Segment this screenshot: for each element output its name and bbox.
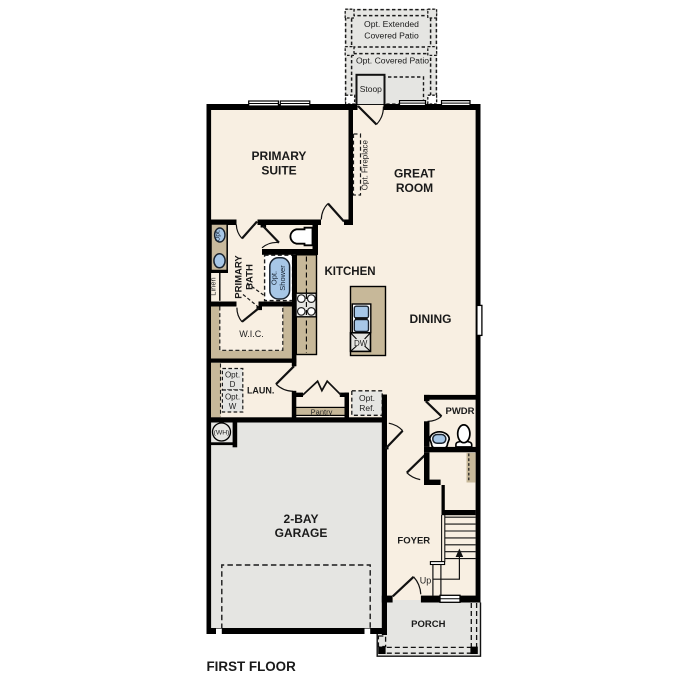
svg-text:SUITE: SUITE xyxy=(261,164,296,178)
svg-text:W.I.C.: W.I.C. xyxy=(239,329,264,339)
svg-text:Opt. Fireplace: Opt. Fireplace xyxy=(361,140,370,191)
svg-text:PRIMARY: PRIMARY xyxy=(252,149,307,163)
svg-text:ROOM: ROOM xyxy=(396,181,433,195)
svg-text:PRIMARY: PRIMARY xyxy=(234,255,245,299)
svg-text:DW: DW xyxy=(354,339,368,348)
svg-text:GARAGE: GARAGE xyxy=(275,526,328,540)
svg-text:FOYER: FOYER xyxy=(397,536,430,547)
svg-text:BATH: BATH xyxy=(245,264,256,290)
svg-text:(WH): (WH) xyxy=(214,430,230,437)
svg-text:Covered Patio: Covered Patio xyxy=(364,31,419,41)
svg-text:PWDR: PWDR xyxy=(445,406,474,417)
svg-text:Linen: Linen xyxy=(209,277,218,295)
svg-text:PORCH: PORCH xyxy=(411,619,445,630)
svg-text:Shower: Shower xyxy=(278,265,287,291)
svg-text:Opt.: Opt. xyxy=(359,393,375,403)
svg-text:Ref.: Ref. xyxy=(359,403,375,413)
svg-text:D: D xyxy=(230,380,236,389)
svg-text:W: W xyxy=(229,402,237,411)
svg-text:LAUN.: LAUN. xyxy=(247,386,275,396)
svg-text:DINING: DINING xyxy=(410,312,452,326)
svg-text:Pantry: Pantry xyxy=(311,408,333,417)
svg-text:Opt.: Opt. xyxy=(225,393,240,402)
svg-text:Stoop: Stoop xyxy=(360,84,382,94)
svg-text:Opt. Covered Patio: Opt. Covered Patio xyxy=(356,56,429,66)
svg-text:Opt.: Opt. xyxy=(225,371,240,380)
svg-text:Up: Up xyxy=(420,576,432,586)
svg-text:Opt. Extended: Opt. Extended xyxy=(364,19,419,29)
svg-text:Opt.: Opt. xyxy=(215,229,222,241)
svg-text:2-BAY: 2-BAY xyxy=(284,512,319,526)
svg-text:GREAT: GREAT xyxy=(394,167,436,181)
svg-text:KITCHEN: KITCHEN xyxy=(324,266,375,278)
svg-text:FIRST FLOOR: FIRST FLOOR xyxy=(207,659,297,674)
